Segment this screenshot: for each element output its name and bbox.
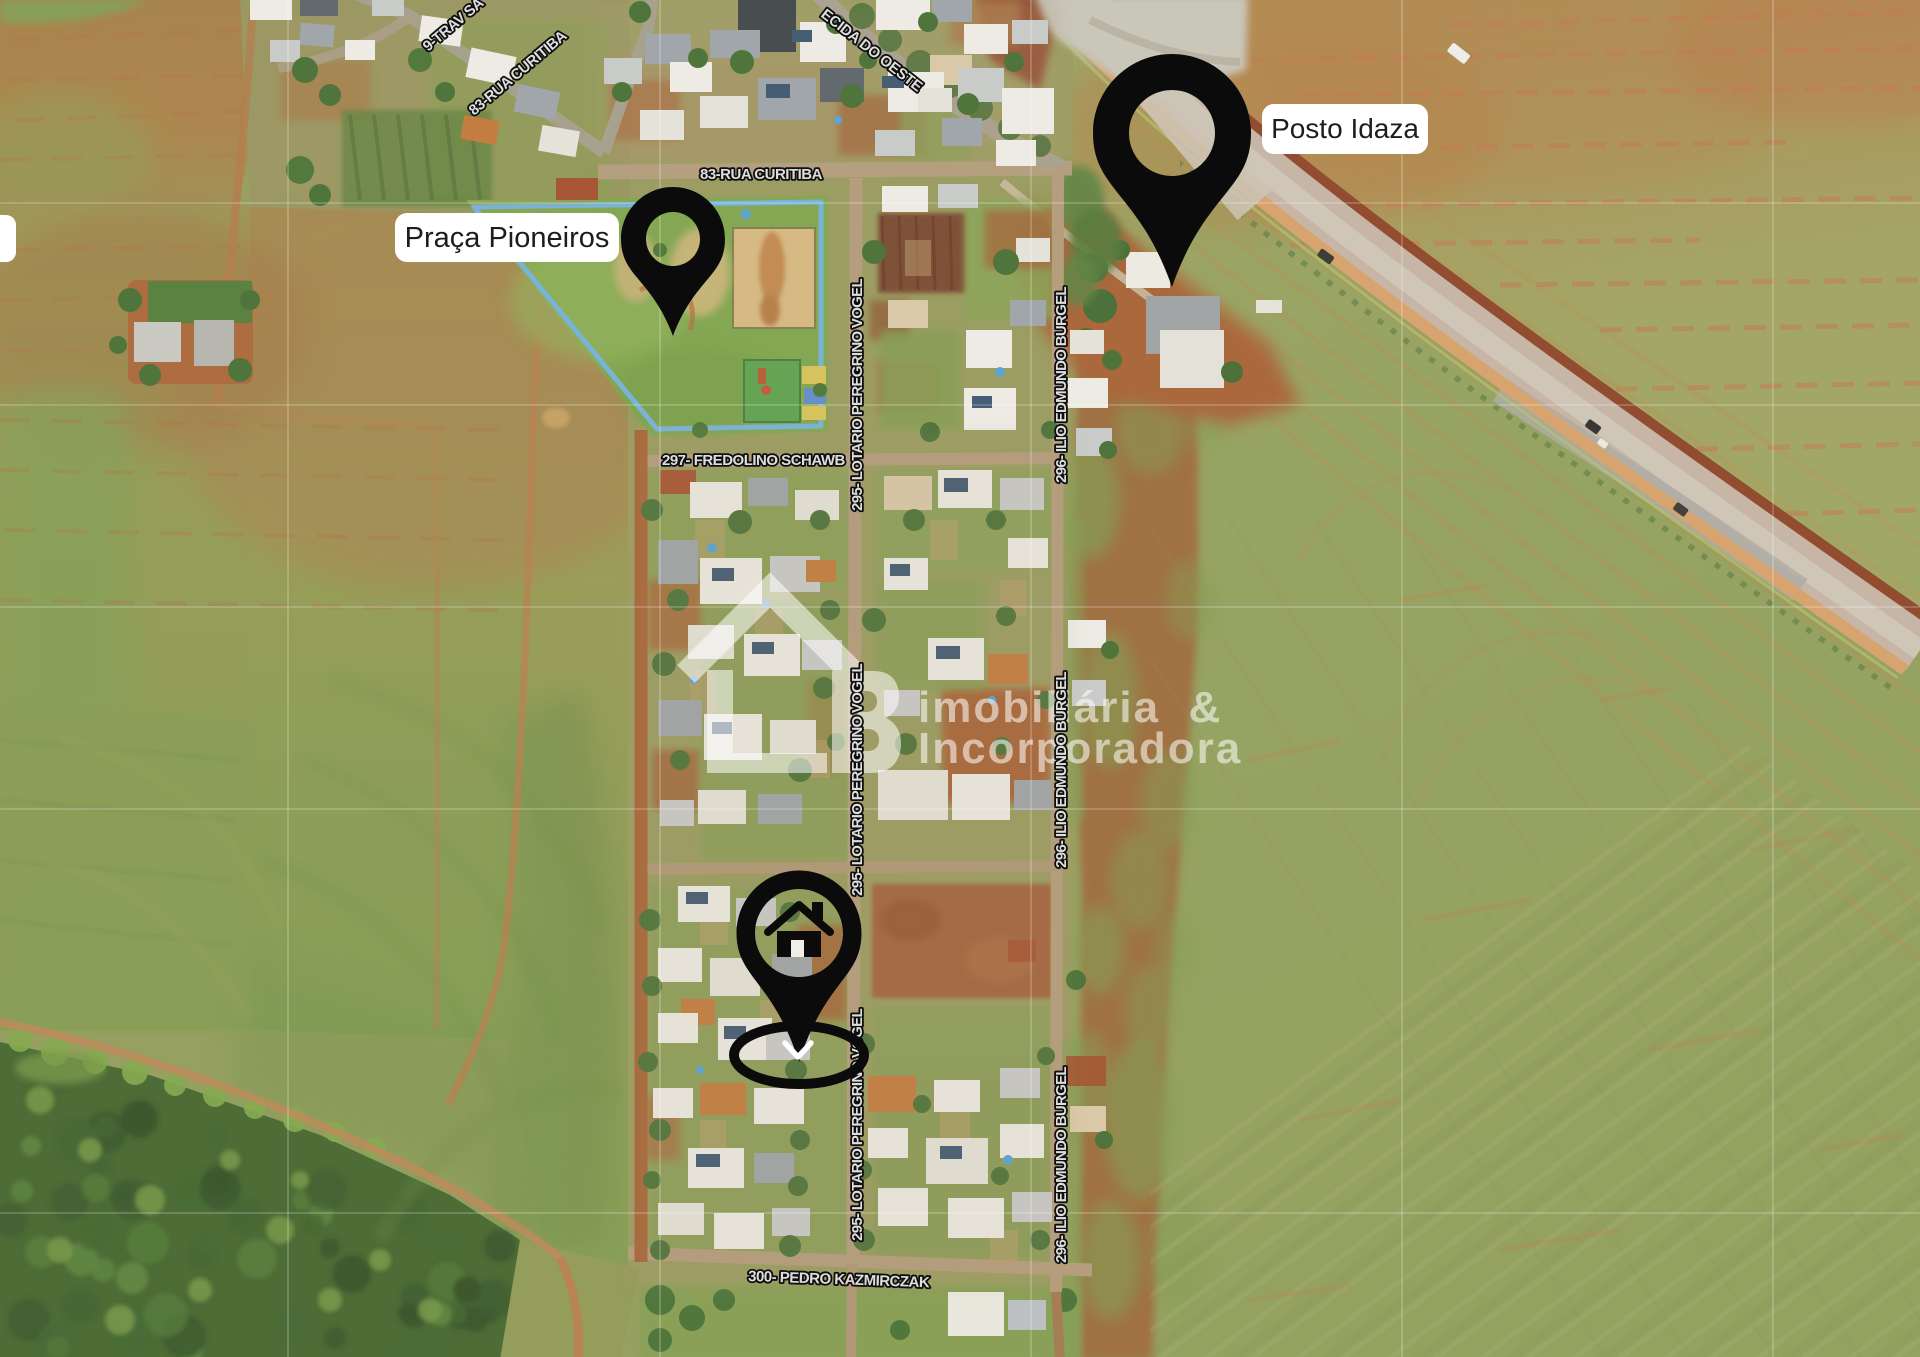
svg-text:295- LOTARIO PEREGRINO VOGEL: 295- LOTARIO PEREGRINO VOGEL <box>849 664 866 896</box>
svg-text:83-RUA CURITIBA: 83-RUA CURITIBA <box>700 166 823 183</box>
svg-text:Praça Pioneiros: Praça Pioneiros <box>405 222 610 254</box>
svg-text:296- ILIO EDMUNDO BURGEL: 296- ILIO EDMUNDO BURGEL <box>1053 672 1070 868</box>
svg-text:296- ILIO EDMUNDO BURGEL: 296- ILIO EDMUNDO BURGEL <box>1053 1067 1070 1263</box>
svg-text:Posto Idaza: Posto Idaza <box>1271 113 1419 144</box>
svg-text:295- LOTARIO PEREGRINO VOGEL: 295- LOTARIO PEREGRINO VOGEL <box>849 279 866 511</box>
svg-text:Incorporadora: Incorporadora <box>918 724 1242 773</box>
svg-text:296- ILIO EDMUNDO BURGEL: 296- ILIO EDMUNDO BURGEL <box>1053 287 1070 483</box>
svg-text:297- FREDOLINO SCHAWB: 297- FREDOLINO SCHAWB <box>662 452 846 469</box>
